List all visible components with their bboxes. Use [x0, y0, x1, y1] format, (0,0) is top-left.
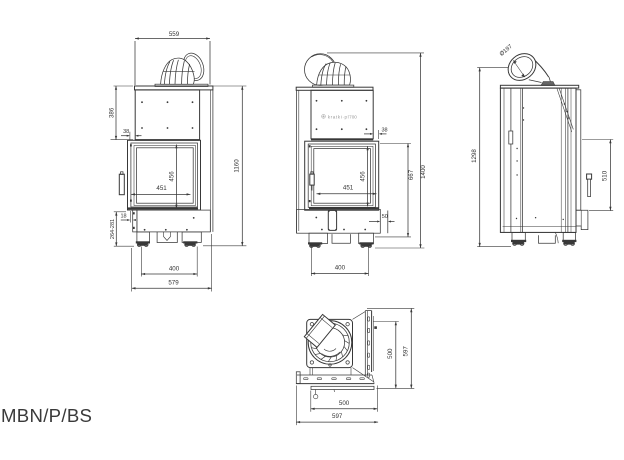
svg-text:451: 451	[156, 185, 167, 192]
svg-text:400: 400	[335, 264, 346, 271]
svg-text:38: 38	[381, 127, 387, 133]
svg-text:579: 579	[168, 280, 179, 287]
svg-text:18: 18	[120, 213, 126, 219]
svg-text:510: 510	[602, 170, 609, 181]
svg-text:38: 38	[123, 129, 129, 135]
svg-text:1160: 1160	[234, 159, 241, 173]
svg-text:400: 400	[169, 265, 180, 272]
svg-text:264-281: 264-281	[110, 219, 116, 239]
svg-text:500: 500	[339, 400, 350, 407]
svg-text:451: 451	[343, 185, 354, 192]
svg-text:386: 386	[109, 107, 116, 118]
svg-text:500: 500	[387, 348, 394, 359]
svg-text:597: 597	[332, 413, 343, 420]
svg-text:50: 50	[382, 214, 388, 220]
svg-text:456: 456	[360, 171, 367, 182]
svg-text:559: 559	[169, 31, 180, 38]
svg-text:456: 456	[168, 171, 175, 182]
svg-text:MBN/P/BS: MBN/P/BS	[1, 405, 92, 426]
svg-text:667: 667	[408, 169, 415, 180]
svg-text:1400: 1400	[420, 165, 427, 179]
svg-text:700: 700	[349, 114, 357, 119]
svg-text:1298: 1298	[471, 149, 478, 163]
svg-text:kratki·pl: kratki·pl	[328, 114, 349, 119]
svg-text:597: 597	[403, 346, 410, 357]
